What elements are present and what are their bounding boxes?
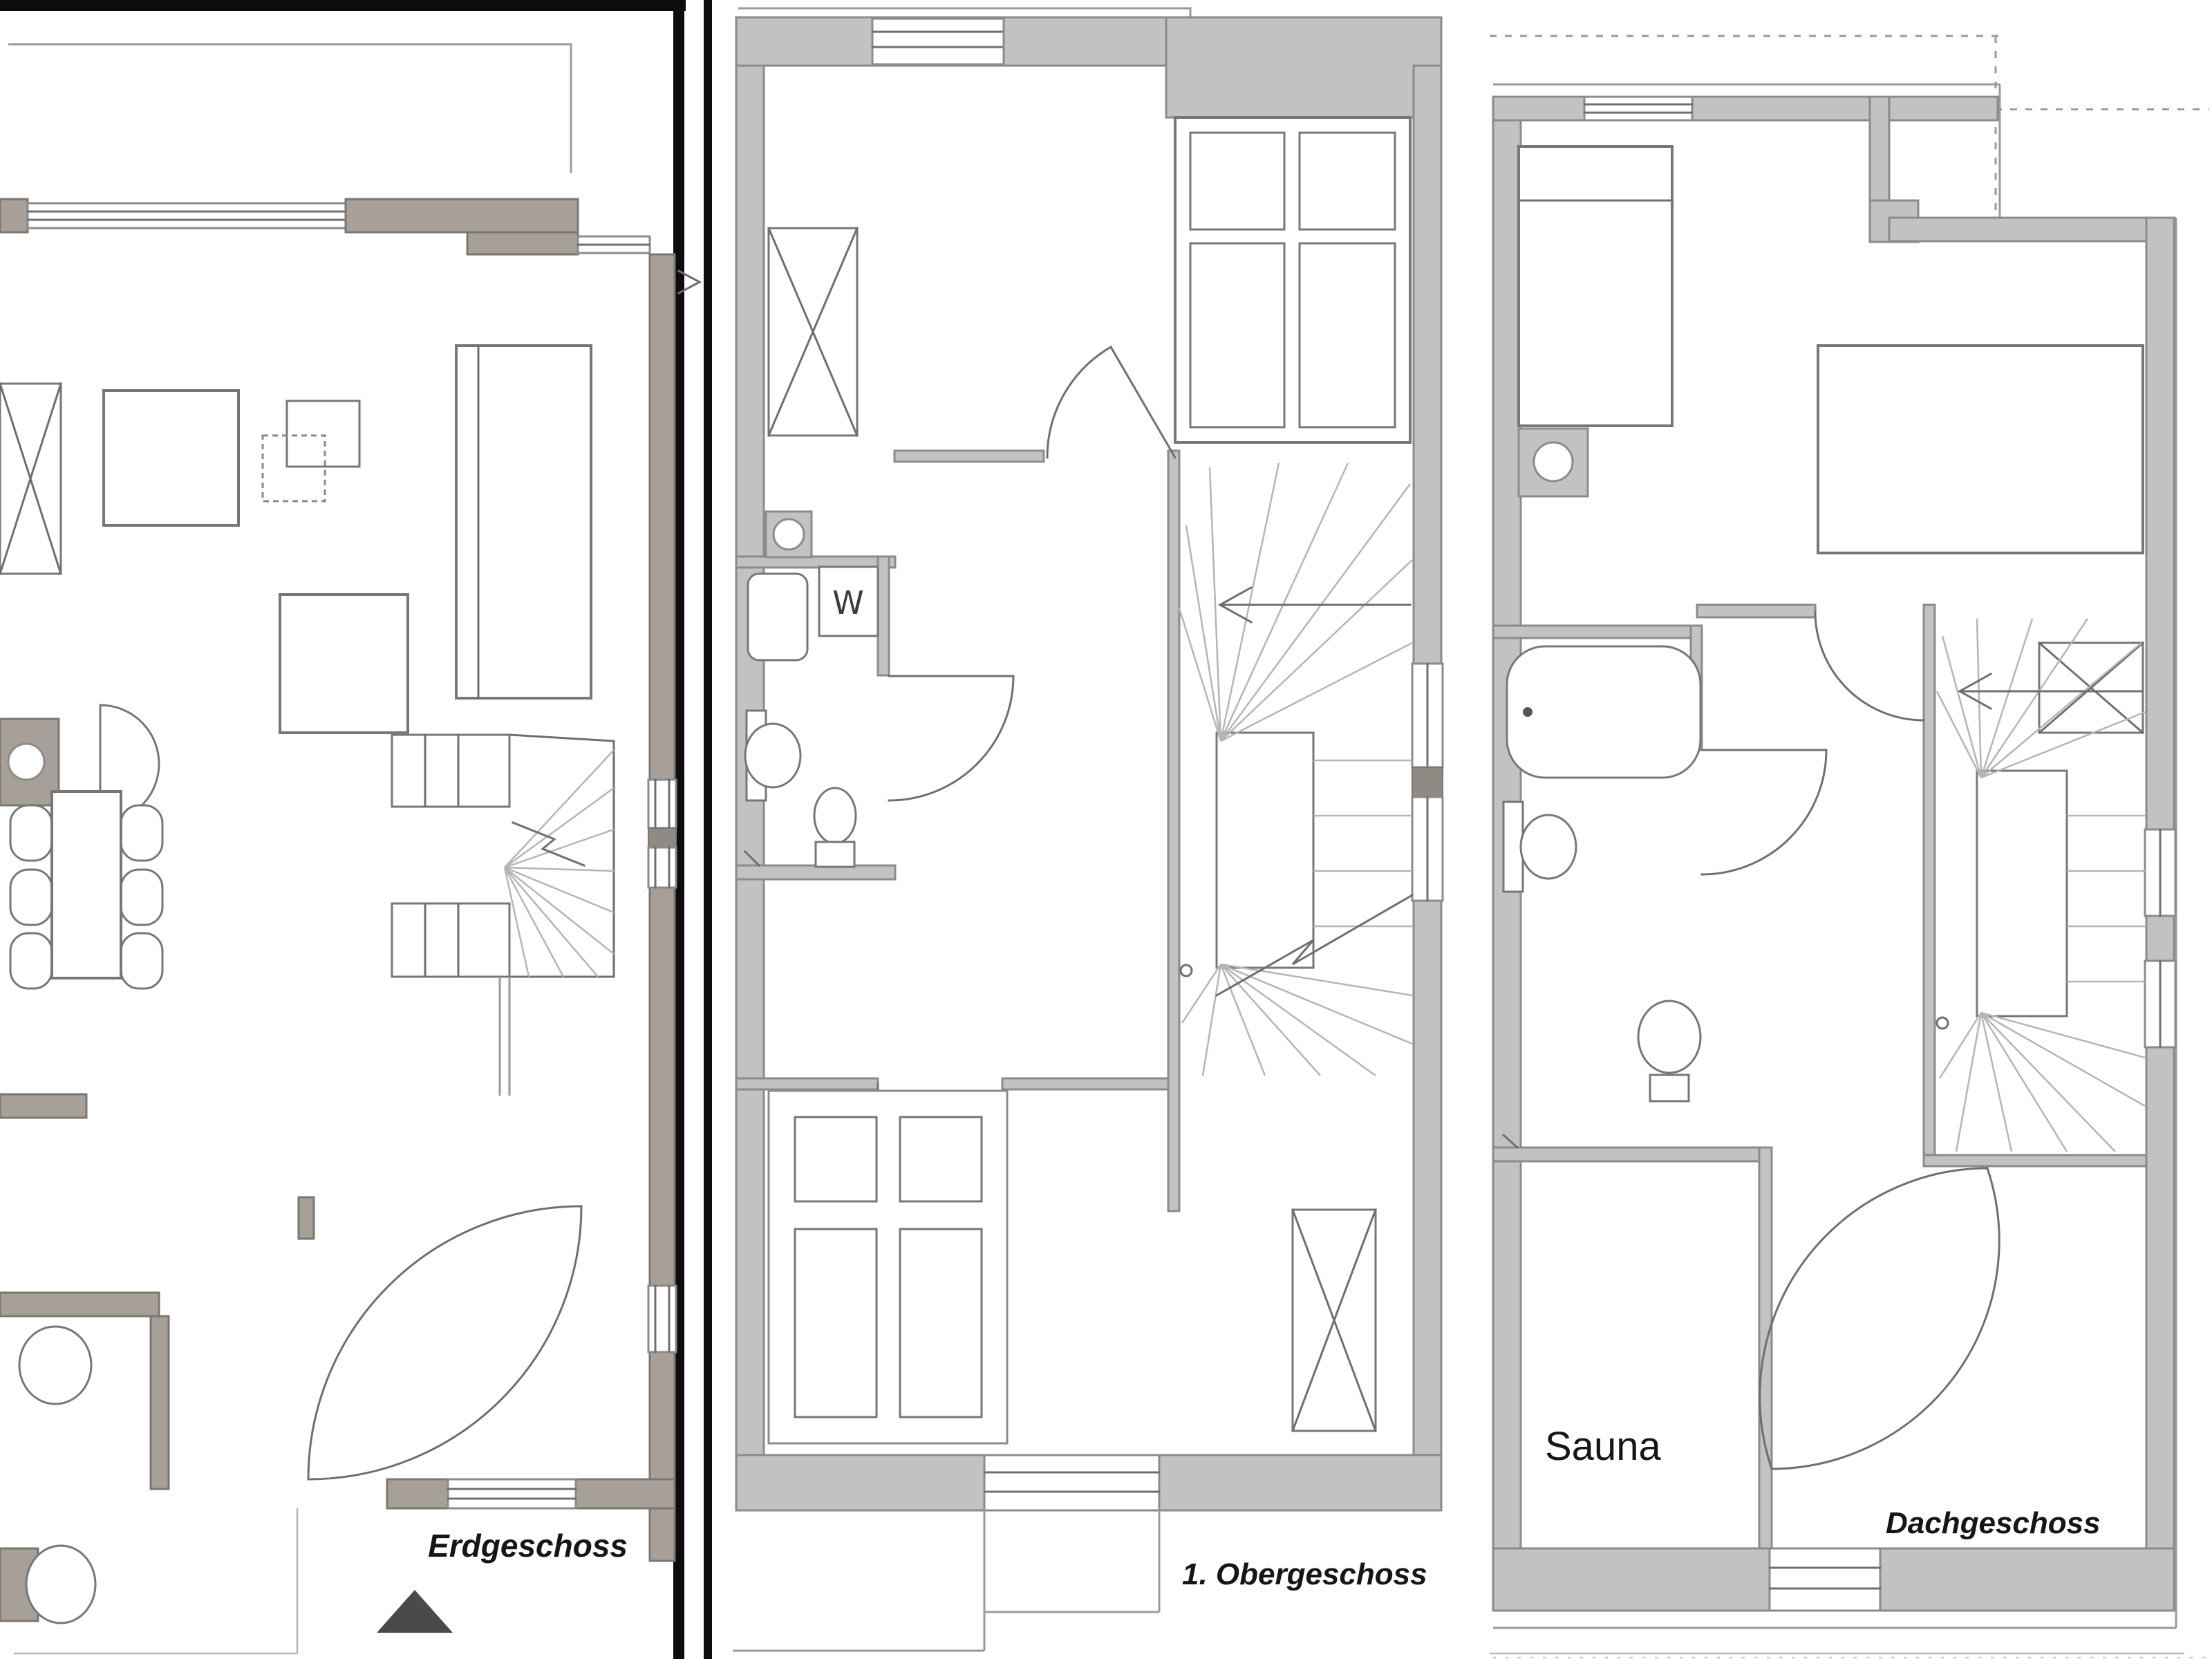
og-french-window-icon bbox=[769, 1091, 1007, 1443]
bathtub-icon bbox=[1507, 646, 1700, 778]
label-obergeschoss: 1. Obergeschoss bbox=[1182, 1557, 1427, 1591]
eg-window-c bbox=[648, 1286, 676, 1352]
eg-window-top bbox=[28, 203, 346, 228]
eg-table-square bbox=[280, 594, 408, 733]
shower-icon bbox=[748, 574, 807, 660]
plan-dachgeschoss: Sauna Dachgeschoss bbox=[1490, 36, 2209, 1658]
dg-bed2 bbox=[1818, 346, 2143, 553]
eg-wc bbox=[0, 1293, 169, 1623]
label-erdgeschoss: Erdgeschoss bbox=[428, 1528, 628, 1564]
eg-stairs-icon bbox=[392, 735, 614, 1096]
sink-icon bbox=[1521, 815, 1576, 879]
toilet-icon bbox=[814, 788, 856, 843]
og-balcony-door bbox=[984, 1455, 1159, 1510]
divider-line bbox=[704, 0, 712, 1659]
floor-plan-sheet: Erdgeschoss bbox=[0, 0, 2212, 1659]
eg-window-bottom bbox=[448, 1479, 576, 1508]
dg-bed-icon bbox=[1519, 147, 1672, 426]
og-roof-outline bbox=[738, 8, 1190, 17]
eg-dining-set bbox=[10, 791, 162, 988]
chair-icon bbox=[10, 805, 52, 861]
frame-top-bar bbox=[0, 0, 686, 11]
roof-outline bbox=[8, 44, 571, 173]
eg-sideboard bbox=[456, 346, 591, 698]
og-wardrobe2-icon bbox=[1293, 1210, 1376, 1431]
plan-obergeschoss: W bbox=[733, 8, 1443, 1651]
eg-kitchen-wall bbox=[0, 1094, 86, 1118]
chair-icon bbox=[121, 870, 162, 925]
eg-window-a bbox=[648, 780, 676, 828]
eg-right-wall bbox=[648, 254, 700, 1561]
dg-doors bbox=[1702, 612, 1999, 1469]
og-double-bed-icon bbox=[1175, 118, 1410, 442]
eg-window-b bbox=[648, 847, 676, 888]
toilet-icon bbox=[26, 1546, 95, 1623]
dg-radiator-icon bbox=[1519, 429, 1588, 496]
toilet-icon bbox=[1638, 1001, 1700, 1073]
eg-bottom-wall bbox=[387, 1479, 675, 1508]
eg-entrance-doors bbox=[299, 1197, 581, 1479]
dg-bathroom bbox=[1503, 646, 1700, 1147]
entrance-marker-icon bbox=[377, 1590, 453, 1633]
chair-icon bbox=[10, 870, 52, 925]
toilet-icon bbox=[19, 1327, 91, 1404]
plan-erdgeschoss: Erdgeschoss bbox=[0, 44, 700, 1653]
dg-bottom-opening bbox=[1770, 1548, 1880, 1611]
label-washer: W bbox=[832, 584, 863, 621]
dg-window-top bbox=[1584, 97, 1692, 120]
og-radiator-icon bbox=[766, 512, 812, 557]
chair-icon bbox=[10, 933, 52, 988]
sink-icon bbox=[745, 724, 800, 787]
chair-icon bbox=[121, 933, 162, 988]
eg-wardrobe-icon bbox=[0, 384, 61, 574]
eg-side-table bbox=[287, 401, 359, 467]
label-dachgeschoss: Dachgeschoss bbox=[1886, 1506, 2101, 1540]
label-sauna: Sauna bbox=[1545, 1424, 1661, 1469]
eg-sofa bbox=[104, 391, 238, 525]
og-balcony bbox=[733, 1510, 1159, 1651]
eg-top-wall bbox=[0, 199, 650, 254]
og-bathroom: W bbox=[745, 567, 878, 867]
og-stairs-icon bbox=[1179, 463, 1412, 1076]
og-wardrobe-icon bbox=[769, 228, 857, 435]
faucet-icon bbox=[1523, 707, 1533, 717]
og-window-top bbox=[872, 19, 1004, 64]
dining-table bbox=[52, 791, 121, 978]
plans-canvas: Erdgeschoss bbox=[0, 0, 2212, 1659]
chair-icon bbox=[121, 805, 162, 861]
